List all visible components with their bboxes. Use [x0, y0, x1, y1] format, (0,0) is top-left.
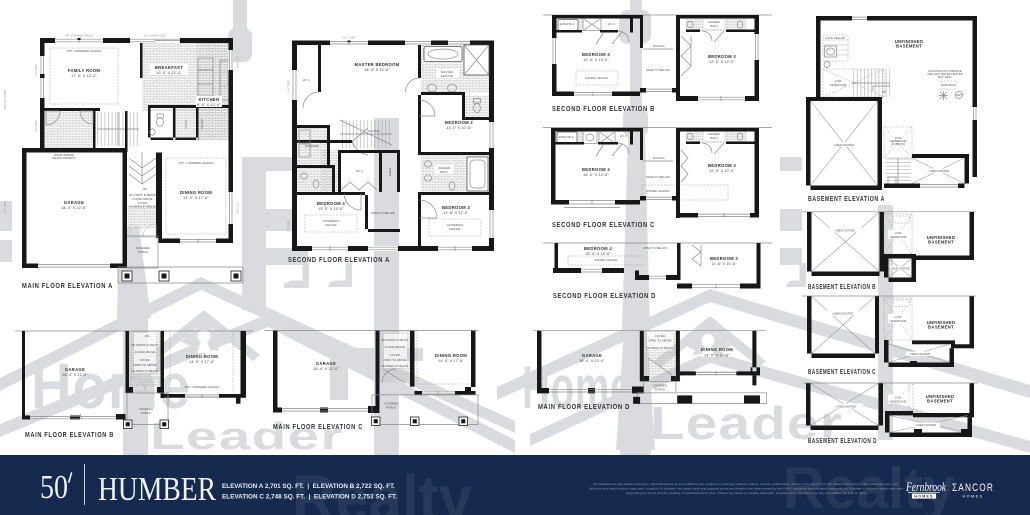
svg-text:FOYER: FOYER	[138, 201, 148, 205]
svg-text:PANTRY: PANTRY	[185, 119, 188, 129]
svg-text:GARAGE: GARAGE	[582, 353, 602, 358]
svg-text:14'-0" X 17'-6": 14'-0" X 17'-6"	[189, 360, 215, 364]
svg-text:CEILING: CEILING	[449, 227, 460, 231]
svg-text:(SUNKEN IF REQ'D): (SUNKEN IF REQ'D)	[647, 346, 674, 350]
svg-text:COVERED: COVERED	[139, 407, 153, 411]
svg-text:OPEN TO BELOW: OPEN TO BELOW	[646, 68, 670, 72]
svg-text:OPT. COFFERED CEILING: OPT. COFFERED CEILING	[178, 161, 213, 165]
svg-text:(SUNKEN IF REQ'D): (SUNKEN IF REQ'D)	[132, 369, 159, 373]
svg-text:15'-0" X 10'-6": 15'-0" X 10'-6"	[583, 173, 609, 177]
svg-text:HOMES: HOMES	[914, 495, 933, 499]
svg-text:BEDROOM 3: BEDROOM 3	[708, 163, 736, 168]
svg-text:Home: Home	[31, 350, 191, 422]
svg-text:RAILING: RAILING	[368, 129, 379, 133]
svg-text:UNEXCAVATED: UNEXCAVATED	[916, 423, 937, 427]
svg-text:(SUNKEN IF REQ'D): (SUNKEN IF REQ'D)	[382, 364, 409, 368]
svg-text:PORCH: PORCH	[386, 406, 396, 410]
svg-text:12'-0" X 12'-0": 12'-0" X 12'-0"	[709, 60, 735, 64]
svg-text:UNEXCAVATED: UNEXCAVATED	[910, 352, 931, 356]
svg-text:18'-4" X 22'-0": 18'-4" X 22'-0"	[579, 359, 605, 363]
svg-text:ENSUITE 2: ENSUITE 2	[560, 22, 575, 26]
svg-text:BATH: BATH	[440, 170, 447, 174]
svg-text:W.I.C.: W.I.C.	[608, 22, 616, 26]
svg-text:14'-0" X 17'-6": 14'-0" X 17'-6"	[704, 354, 730, 358]
svg-text:4'-0" CSMT: 4'-0" CSMT	[289, 80, 291, 92]
svg-text:15'-0" X 10'-0": 15'-0" X 10'-0"	[583, 58, 609, 62]
svg-text:BASEMENT ELEVATION B: BASEMENT ELEVATION B	[808, 284, 876, 291]
svg-text:DINING ROOM: DINING ROOM	[186, 354, 218, 359]
svg-text:BEDROOM 3: BEDROOM 3	[442, 205, 470, 210]
svg-text:FOYER: FOYER	[390, 353, 400, 357]
svg-text:DN: DN	[145, 334, 149, 338]
svg-text:FOYER: FOYER	[140, 358, 150, 362]
svg-text:GARAGE: GARAGE	[64, 200, 84, 205]
svg-text:LOW: LOW	[895, 396, 902, 400]
svg-text:4'-0" CSMT: 4'-0" CSMT	[36, 120, 38, 132]
svg-text:HEADROOM: HEADROOM	[830, 83, 847, 87]
svg-text:FLOOR ABOVE: FLOOR ABOVE	[385, 345, 405, 349]
svg-text:GARAGE: GARAGE	[316, 361, 336, 366]
svg-text:Fernbrook: Fernbrook	[905, 479, 946, 494]
svg-text:LINEN: LINEN	[388, 168, 392, 176]
svg-text:BASEMENT: BASEMENT	[927, 399, 953, 404]
svg-text:LOW: LOW	[895, 315, 902, 319]
svg-text:5'-0" CSMT: 5'-0" CSMT	[289, 220, 291, 232]
svg-text:OPT. COFFERED CEILING: OPT. COFFERED CEILING	[184, 385, 219, 389]
svg-text:HEADROOM: HEADROOM	[890, 400, 907, 404]
svg-text:SECOND FLOOR ELEVATION B: SECOND FLOOR ELEVATION B	[552, 106, 655, 113]
svg-text:8'-0" X 13'-0": 8'-0" X 13'-0"	[197, 103, 221, 107]
svg-text:DINING ROOM: DINING ROOM	[180, 190, 212, 195]
svg-text:BASEMENT ELEVATION D: BASEMENT ELEVATION D	[808, 438, 877, 445]
svg-text:BATH: BATH	[710, 24, 717, 28]
svg-text:HEADROOM: HEADROOM	[890, 319, 907, 323]
svg-text:UNEXCAVATED: UNEXCAVATED	[833, 312, 854, 316]
svg-text:OPT. EXTENDED CEILING: OPT. EXTENDED CEILING	[65, 36, 93, 38]
svg-text:18'-4" X 22'-0": 18'-4" X 22'-0"	[62, 373, 88, 377]
svg-text:MAIN FLOOR ELEVATION C: MAIN FLOOR ELEVATION C	[273, 424, 363, 431]
svg-text:5'-0" CSMT: 5'-0" CSMT	[36, 64, 38, 76]
svg-text:All illustrations are artist's: All illustrations are artist's concept. …	[593, 482, 899, 486]
svg-text:HWT: HWT	[956, 93, 963, 97]
svg-text:12'-0" X 12'-0": 12'-0" X 12'-0"	[709, 169, 735, 173]
svg-text:50: 50	[40, 469, 68, 506]
svg-text:5'-0" CSMT: 5'-0" CSMT	[236, 56, 238, 68]
svg-text:8'-0" SLIDING DOOR: 8'-0" SLIDING DOOR	[144, 36, 166, 38]
svg-text:MASTER BEDROOM: MASTER BEDROOM	[355, 62, 400, 67]
svg-text:MAIN FLOOR ELEVATION A: MAIN FLOOR ELEVATION A	[22, 283, 113, 290]
svg-text:RAISED CEILING: RAISED CEILING	[647, 189, 670, 193]
svg-text:RAILING: RAILING	[653, 156, 664, 160]
svg-text:HOMES: HOMES	[963, 495, 984, 499]
svg-text:11'-6" X 10'-6": 11'-6" X 10'-6"	[711, 262, 737, 266]
svg-text:UNEXCAVATED: UNEXCAVATED	[836, 405, 857, 409]
svg-text:PORCH: PORCH	[141, 411, 151, 415]
svg-text:FURNACE: FURNACE	[942, 83, 956, 87]
svg-text:GARAGE: GARAGE	[65, 367, 85, 372]
svg-text:UNEXCAVATED: UNEXCAVATED	[835, 229, 856, 233]
svg-text:6R STEPS IF REQ'D: 6R STEPS IF REQ'D	[382, 338, 409, 342]
svg-text:16'X7' O.H. DOOR: 16'X7' O.H. DOOR	[5, 90, 7, 109]
svg-text:18'-0" X 12'-6": 18'-0" X 12'-6"	[364, 68, 390, 72]
svg-text:W.I.C.: W.I.C.	[356, 169, 364, 173]
svg-text:BATH: BATH	[710, 136, 717, 140]
svg-text:MAY VARY: MAY VARY	[938, 75, 952, 79]
svg-text:Window size and location may v: Window size and location may vary. Locat…	[589, 487, 904, 491]
svg-text:OPEN TO ABOVE: OPEN TO ABOVE	[648, 339, 671, 343]
svg-text:UNEXCAVATED: UNEXCAVATED	[929, 169, 950, 173]
svg-text:ENSUITE: ENSUITE	[441, 74, 453, 78]
svg-text:CATHEDRAL: CATHEDRAL	[447, 223, 464, 227]
svg-text:SHARED: SHARED	[708, 132, 720, 136]
svg-text:(SUNKEN): (SUNKEN)	[305, 144, 319, 148]
svg-text:OPEN TO BELOW: OPEN TO BELOW	[643, 246, 667, 250]
svg-text:PORCH: PORCH	[655, 388, 665, 392]
svg-text:DINING ROOM: DINING ROOM	[435, 353, 467, 358]
svg-text:HEADROOM: HEADROOM	[890, 235, 907, 239]
svg-text:BASEMENT: BASEMENT	[928, 325, 954, 330]
svg-text:DINING ROOM: DINING ROOM	[701, 347, 733, 352]
svg-text:CATHEDRAL: CATHEDRAL	[323, 219, 340, 223]
svg-text:ƩANCOR: ƩANCOR	[952, 482, 994, 494]
svg-text:SECOND FLOOR ELEVATION D: SECOND FLOOR ELEVATION D	[553, 293, 656, 300]
svg-text:OPEN TO ABOVE: OPEN TO ABOVE	[133, 363, 156, 367]
svg-text:BASEMENT: BASEMENT	[896, 44, 922, 49]
svg-text:OPEN TO ABOVE: OPEN TO ABOVE	[383, 358, 406, 362]
svg-text:FAMILY ROOM: FAMILY ROOM	[68, 68, 101, 73]
svg-text:BASEMENT ELEVATION A: BASEMENT ELEVATION A	[808, 196, 885, 203]
svg-text:FLOOR ABOVE: FLOOR ABOVE	[135, 350, 155, 354]
svg-text:6'-0" CSMT: 6'-0" CSMT	[236, 202, 238, 214]
svg-text:ENSUITE 2: ENSUITE 2	[559, 135, 574, 139]
svg-text:HUMBER: HUMBER	[98, 471, 216, 508]
svg-text:OPEN TO BELOW: OPEN TO BELOW	[371, 211, 395, 215]
svg-text:COVERED: COVERED	[384, 402, 398, 406]
svg-text:LOW: LOW	[835, 79, 842, 83]
svg-text:(IF REQ'D): (IF REQ'D)	[891, 142, 905, 146]
svg-text:BASEMENT: BASEMENT	[928, 240, 954, 245]
svg-text:6R STEPS IF REQ'D: 6R STEPS IF REQ'D	[129, 193, 156, 197]
svg-text:17'-9" X 12'-4": 17'-9" X 12'-4"	[71, 74, 97, 78]
svg-text:BEDROOM 3: BEDROOM 3	[708, 54, 736, 59]
svg-text:COVERED: COVERED	[136, 246, 150, 250]
svg-text:BEDROOM 4: BEDROOM 4	[582, 52, 610, 57]
svg-text:14'-0" X 17'-6": 14'-0" X 17'-6"	[438, 359, 464, 363]
svg-text:11'-0" X 10'-6": 11'-0" X 10'-6"	[446, 126, 472, 130]
svg-text:SHARED: SHARED	[708, 20, 720, 24]
svg-text:MAIN FLOOR ELEVATION D: MAIN FLOOR ELEVATION D	[538, 404, 630, 411]
svg-text:W.I.C.: W.I.C.	[303, 78, 311, 82]
svg-text:BEDROOM 4: BEDROOM 4	[584, 246, 612, 251]
svg-text:SECOND FLOOR ELEVATION C: SECOND FLOOR ELEVATION C	[552, 222, 655, 229]
svg-text:MAIN FLOOR ELEVATION B: MAIN FLOOR ELEVATION B	[25, 432, 114, 439]
svg-text:10'-0" CSMT: 10'-0" CSMT	[343, 38, 357, 40]
svg-text:10'-0" X 12'-4": 10'-0" X 12'-4"	[156, 71, 182, 75]
svg-text:GRADE PERMITS: GRADE PERMITS	[52, 156, 76, 160]
svg-text:ELEVATION A 2,701 SQ. FT. |: ELEVATION A 2,701 SQ. FT. | ELEVATION B …	[222, 483, 395, 490]
svg-text:CEILING: CEILING	[325, 223, 336, 227]
svg-text:KITCHEN: KITCHEN	[199, 97, 220, 102]
svg-text:MASTER: MASTER	[441, 70, 453, 74]
svg-text:11'-8" X 12'-0": 11'-8" X 12'-0"	[443, 211, 469, 215]
svg-text:BEDROOM 4: BEDROOM 4	[582, 167, 610, 172]
svg-text:5'-0" CSMT: 5'-0" CSMT	[5, 201, 7, 213]
svg-text:LAUNDRY: LAUNDRY	[305, 140, 319, 144]
svg-text:LOW: LOW	[895, 231, 902, 235]
svg-text:BEDROOM 3: BEDROOM 3	[710, 256, 738, 261]
svg-text:OPT. COFFERED CEILING: OPT. COFFERED CEILING	[66, 49, 101, 53]
svg-text:UNEXCAVATED: UNEXCAVATED	[890, 266, 911, 270]
svg-text:18'-4" X 22'-0": 18'-4" X 22'-0"	[61, 206, 87, 210]
svg-text:COLD CELLAR: COLD CELLAR	[825, 36, 845, 40]
svg-text:SERVERY: SERVERY	[202, 118, 204, 129]
svg-text:(SUNKEN IF REQ'D): (SUNKEN IF REQ'D)	[129, 205, 156, 209]
svg-text:PORCH: PORCH	[138, 250, 148, 254]
svg-text:BREAKFAST: BREAKFAST	[155, 65, 183, 70]
svg-text:RAISED CEILING: RAISED CEILING	[586, 76, 609, 80]
svg-text:14'-0" X 17'-6": 14'-0" X 17'-6"	[183, 196, 209, 200]
svg-text:6R STEPS IF REQ'D: 6R STEPS IF REQ'D	[132, 343, 159, 347]
svg-text:RAILING: RAILING	[653, 44, 664, 48]
svg-text:COVERED: COVERED	[653, 384, 667, 388]
svg-text:ELEVATION C 2,748 SQ. FT. |: ELEVATION C 2,748 SQ. FT. | ELEVATION D …	[222, 494, 397, 501]
svg-text:UNEXCAVATED: UNEXCAVATED	[834, 143, 855, 147]
svg-text:15'-0" X 10'-6": 15'-0" X 10'-6"	[318, 207, 344, 211]
svg-text:BASEMENT ELEVATION C: BASEMENT ELEVATION C	[808, 369, 876, 376]
svg-text:OPEN TO BELOW: OPEN TO BELOW	[646, 175, 670, 179]
svg-text:FOYER: FOYER	[655, 334, 665, 338]
svg-text:SECOND FLOOR ELEVATION A: SECOND FLOOR ELEVATION A	[288, 257, 390, 264]
svg-text:15'-0" X 10'-6": 15'-0" X 10'-6"	[585, 252, 611, 256]
svg-text:BEDROOM 2: BEDROOM 2	[445, 120, 473, 125]
svg-text:UP: UP	[882, 90, 886, 94]
svg-text:depending on the lot and the g: depending on the lot and the grading of …	[626, 491, 866, 495]
svg-text:Leader: Leader	[150, 416, 344, 458]
svg-text:SHARED: SHARED	[438, 166, 450, 170]
svg-text:FLOOR ABOVE: FLOOR ABOVE	[132, 197, 152, 201]
svg-text:RAISED CEILING: RAISED CEILING	[595, 258, 618, 262]
svg-text:18'-4" X 22'-0": 18'-4" X 22'-0"	[313, 367, 339, 371]
svg-text:DN: DN	[143, 187, 147, 191]
svg-text:W.I.C.: W.I.C.	[620, 134, 628, 138]
svg-text:BEDROOM 4: BEDROOM 4	[317, 201, 345, 206]
